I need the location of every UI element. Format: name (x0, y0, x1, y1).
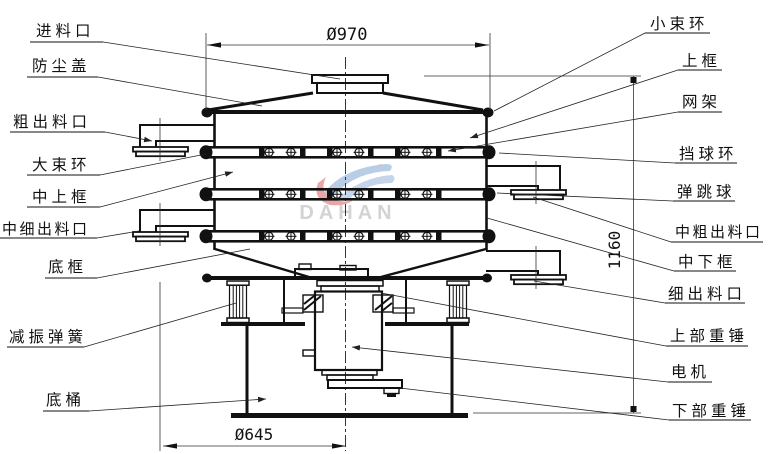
watermark-brand-text: DAHAN (299, 202, 396, 224)
machine-drawing (133, 75, 566, 418)
label-bouncing-ball: 弹跳球 (677, 183, 736, 201)
frame-walls (215, 114, 487, 250)
label-medium-coarse-outlet: 中粗出料口 (675, 224, 763, 241)
label-coarse-outlet: 粗出料口 (13, 113, 91, 131)
lower-weight-plate (328, 380, 402, 388)
label-damping-spring: 减振弹簧 (9, 328, 87, 346)
top-clamp-left (202, 108, 213, 118)
dim-total-height-text: 1160 (605, 231, 624, 270)
label-middle-lower-frame: 中下框 (678, 253, 737, 271)
diagram-canvas: ® DAHAN (0, 0, 769, 454)
label-large-clamp-ring: 大束环 (32, 156, 91, 174)
dust-cover (202, 93, 494, 118)
label-medium-fine-outlet: 中细出料口 (2, 221, 90, 238)
registered-mark: ® (377, 163, 385, 174)
motor-assembly (282, 264, 414, 397)
deck-band-1 (200, 145, 496, 159)
label-lower-weight: 下部重锤 (672, 402, 750, 420)
label-upper-weight: 上部重锤 (670, 327, 748, 345)
label-ball-stop-ring: 挡球环 (679, 145, 738, 163)
dimension-total-height: 1160 (424, 76, 641, 413)
vibrating-sieve-diagram: ® DAHAN (0, 0, 769, 454)
label-screen-frame: 网架 (682, 93, 721, 111)
label-bottom-frame: 底框 (48, 258, 87, 276)
motor-clamp-left (282, 295, 323, 313)
feed-inlet-port (312, 75, 388, 93)
motor-body (315, 292, 382, 371)
damping-spring-right (447, 281, 469, 323)
labels-left: 进料口 防尘盖 粗出料口 大束环 中上框 中细出料口 底框 减振弹簧 底桶 (0, 22, 105, 411)
dim-base-diameter-text: Ø645 (235, 425, 274, 444)
top-clamp-right (483, 108, 494, 118)
label-dust-cover: 防尘盖 (32, 57, 91, 75)
deck-band-3 (200, 229, 496, 243)
label-upper-frame: 上框 (682, 52, 721, 70)
base-plate (231, 413, 468, 418)
label-fine-outlet: 细出料口 (668, 285, 746, 303)
dimension-base-diameter: Ø645 (160, 282, 346, 451)
damping-spring-left (227, 281, 249, 323)
medium-coarse-outlet-chute (486, 161, 566, 204)
dim-top-diameter-text: Ø970 (327, 25, 368, 45)
fine-outlet-chute (486, 246, 566, 289)
dahan-watermark-logo-icon: ® DAHAN (299, 163, 396, 224)
label-motor: 电机 (671, 363, 710, 381)
label-feed-inlet: 进料口 (36, 22, 95, 40)
labels-right: 小束环 上框 网架 挡球环 弹跳球 中粗出料口 中下框 细出料口 上部重锤 电机… (645, 15, 763, 420)
label-middle-upper-frame: 中上框 (32, 188, 91, 206)
label-base-drum: 底桶 (46, 391, 85, 409)
dimension-top-diameter: Ø970 (206, 25, 490, 110)
label-small-clamp-ring: 小束环 (650, 15, 709, 33)
